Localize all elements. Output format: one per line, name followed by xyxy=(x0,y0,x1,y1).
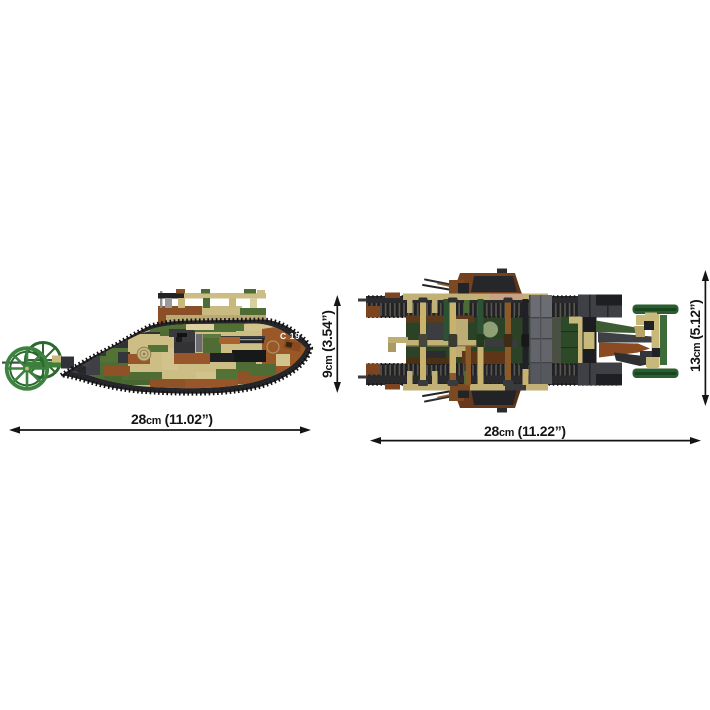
svg-text:C 19: C 19 xyxy=(280,331,300,341)
svg-text:9cm (3.54”): 9cm (3.54”) xyxy=(319,310,335,378)
svg-text:28cm (11.22”): 28cm (11.22”) xyxy=(484,423,566,439)
svg-text:28cm (11.02”): 28cm (11.02”) xyxy=(131,411,213,427)
svg-text:13cm (5.12”): 13cm (5.12”) xyxy=(687,300,703,372)
